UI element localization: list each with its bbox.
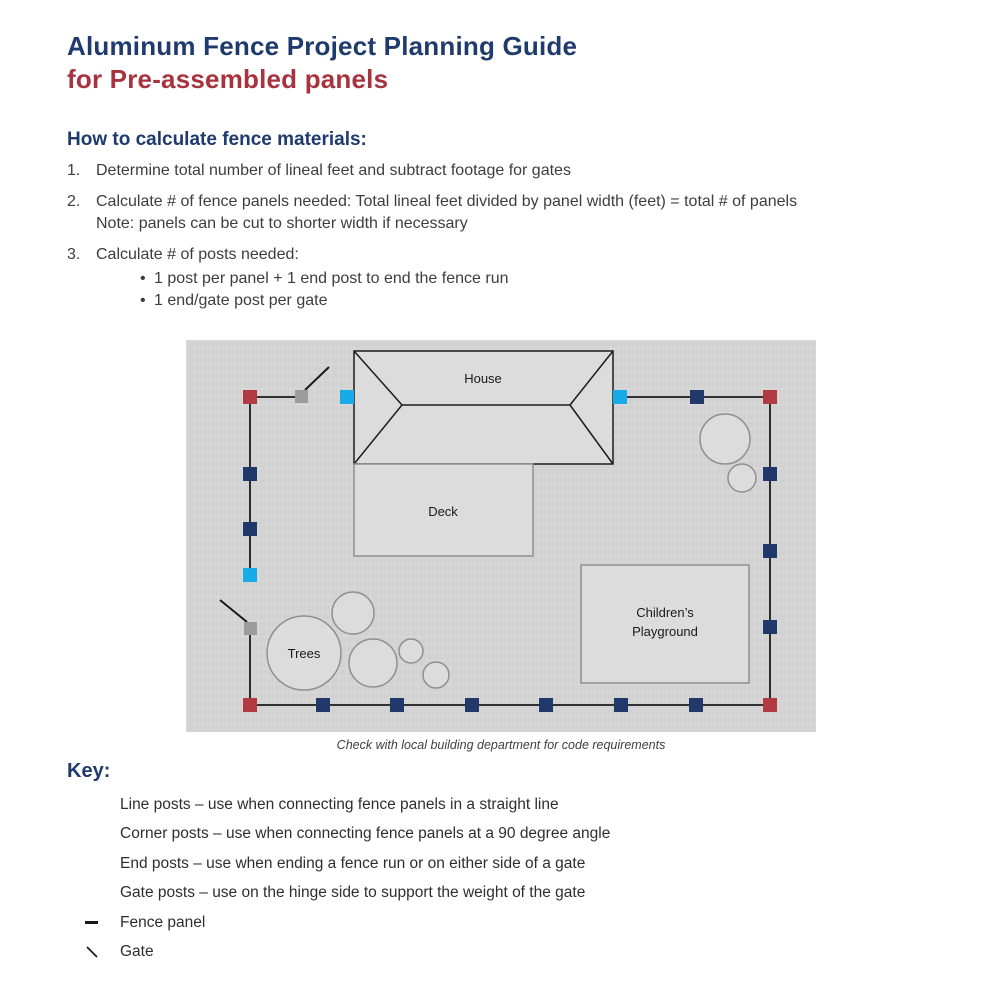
tree-circle bbox=[423, 662, 449, 688]
step-1: 1. Determine total number of lineal feet… bbox=[67, 160, 947, 182]
end-post bbox=[340, 390, 354, 404]
gate-post-icon bbox=[85, 886, 100, 901]
key-item-gate-posts: Gate posts – use on the hinge side to su… bbox=[85, 886, 610, 901]
line-post bbox=[243, 467, 257, 481]
deck-label: Deck bbox=[428, 504, 458, 519]
step-2-note: Note: panels can be cut to shorter width… bbox=[96, 213, 947, 235]
key-item-label: Corner posts – use when connecting fence… bbox=[120, 825, 610, 843]
gate-post bbox=[244, 622, 257, 635]
key-list: Line posts – use when connecting fence p… bbox=[85, 797, 610, 974]
deck-shape: Deck bbox=[354, 464, 533, 556]
line-post bbox=[465, 698, 479, 712]
line-post bbox=[614, 698, 628, 712]
end-post bbox=[613, 390, 627, 404]
line-post bbox=[763, 620, 777, 634]
trees-label: Trees bbox=[288, 646, 321, 661]
gate-post bbox=[295, 390, 308, 403]
key-item-label: Fence panel bbox=[120, 914, 205, 932]
site-plan-diagram: House Deck Children’s Playground Trees bbox=[186, 340, 816, 732]
house-label: House bbox=[464, 371, 502, 386]
diagram-caption: Check with local building department for… bbox=[186, 738, 816, 752]
bullet-1-dot: • bbox=[140, 268, 154, 290]
step-2-text: Calculate # of fence panels needed: Tota… bbox=[96, 191, 947, 235]
gate-icon bbox=[85, 945, 100, 960]
key-item-gate: Gate bbox=[85, 945, 610, 960]
bullet-2-text: 1 end/gate post per gate bbox=[154, 290, 327, 312]
bullet-1: • 1 post per panel + 1 end post to end t… bbox=[140, 268, 947, 290]
line-post bbox=[316, 698, 330, 712]
key-item-label: End posts – use when ending a fence run … bbox=[120, 855, 585, 873]
step-3-number: 3. bbox=[67, 244, 96, 312]
line-post bbox=[390, 698, 404, 712]
step-1-number: 1. bbox=[67, 160, 96, 182]
tree-circle bbox=[399, 639, 423, 663]
key-heading: Key: bbox=[67, 760, 110, 783]
house-shape: House bbox=[354, 351, 613, 464]
page-title: Aluminum Fence Project Planning Guide fo… bbox=[67, 30, 577, 96]
playground-label-line1: Children’s bbox=[636, 605, 694, 620]
key-item-fence-panel: Fence panel bbox=[85, 915, 610, 930]
line-post bbox=[763, 544, 777, 558]
playground-label-line2: Playground bbox=[632, 624, 698, 639]
step-3: 3. Calculate # of posts needed: • 1 post… bbox=[67, 244, 947, 312]
step-2-line-1: Calculate # of fence panels needed: Tota… bbox=[96, 191, 947, 213]
step-3-line-1: Calculate # of posts needed: bbox=[96, 244, 947, 266]
step-2-number: 2. bbox=[67, 191, 96, 235]
section-heading: How to calculate fence materials: bbox=[67, 129, 367, 151]
line-post bbox=[690, 390, 704, 404]
shrub-circle bbox=[700, 414, 750, 464]
line-post bbox=[689, 698, 703, 712]
line-post-icon bbox=[85, 797, 100, 812]
tree-circle bbox=[349, 639, 397, 687]
corner-post bbox=[243, 390, 257, 404]
step-1-text: Determine total number of lineal feet an… bbox=[96, 160, 947, 182]
line-post bbox=[243, 522, 257, 536]
bullet-2: • 1 end/gate post per gate bbox=[140, 290, 947, 312]
end-post bbox=[243, 568, 257, 582]
key-item-label: Gate posts – use on the hinge side to su… bbox=[120, 884, 585, 902]
line-post bbox=[763, 467, 777, 481]
end-post-icon bbox=[85, 856, 100, 871]
key-item-end-posts: End posts – use when ending a fence run … bbox=[85, 856, 610, 871]
title-line-1: Aluminum Fence Project Planning Guide bbox=[67, 30, 577, 63]
site-plan-svg: House Deck Children’s Playground Trees bbox=[186, 340, 816, 732]
corner-post bbox=[763, 698, 777, 712]
bullet-1-text: 1 post per panel + 1 end post to end the… bbox=[154, 268, 508, 290]
key-item-label: Line posts – use when connecting fence p… bbox=[120, 796, 559, 814]
fence-panel-icon bbox=[85, 915, 100, 930]
line-post bbox=[539, 698, 553, 712]
corner-post-icon bbox=[85, 827, 100, 842]
key-item-corner-posts: Corner posts – use when connecting fence… bbox=[85, 827, 610, 842]
step-2: 2. Calculate # of fence panels needed: T… bbox=[67, 191, 947, 235]
corner-post bbox=[243, 698, 257, 712]
instruction-list: 1. Determine total number of lineal feet… bbox=[67, 160, 947, 321]
house-outline bbox=[354, 351, 613, 464]
title-line-2: for Pre-assembled panels bbox=[67, 63, 577, 96]
key-item-label: Gate bbox=[120, 943, 154, 961]
step-3-bullets: • 1 post per panel + 1 end post to end t… bbox=[140, 268, 947, 312]
step-3-text: Calculate # of posts needed: • 1 post pe… bbox=[96, 244, 947, 312]
tree-circle bbox=[332, 592, 374, 634]
shrub-circle bbox=[728, 464, 756, 492]
key-item-line-posts: Line posts – use when connecting fence p… bbox=[85, 797, 610, 812]
bullet-2-dot: • bbox=[140, 290, 154, 312]
playground-shape: Children’s Playground bbox=[581, 565, 749, 683]
corner-post bbox=[763, 390, 777, 404]
